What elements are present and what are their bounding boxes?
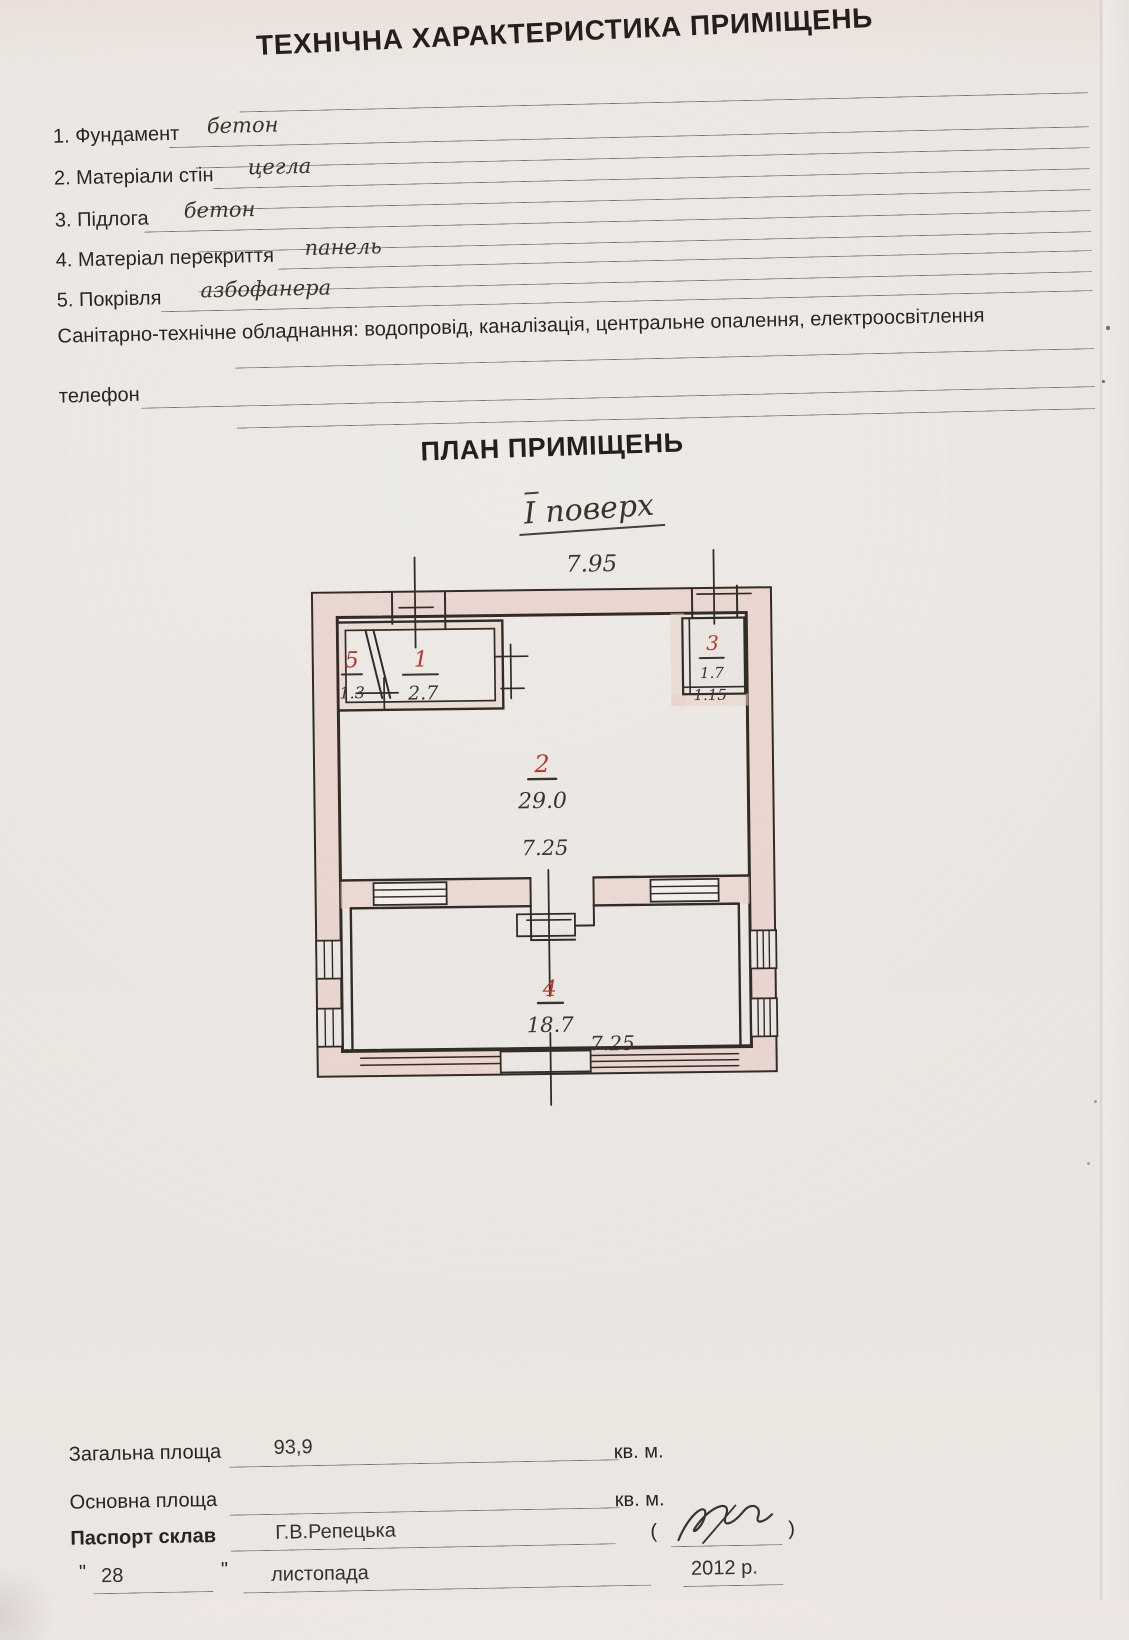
total-area-label: Загальна площа — [69, 1441, 222, 1467]
footer-section: Загальна площа 93,9 кв. м. Основна площа… — [68, 1416, 1081, 1611]
room4-dimension: 7.25 — [590, 1031, 635, 1056]
paper-speck — [1102, 380, 1105, 383]
day-quote-close: " — [221, 1559, 229, 1582]
room1-area: 2.7 — [407, 682, 439, 704]
day-quote-open: " — [79, 1561, 87, 1584]
ruled-line — [144, 210, 1091, 232]
room3-number: 3 — [706, 631, 719, 655]
form-item-value-handwritten: бетон — [183, 197, 255, 223]
passport-author: Г.В.Репецька — [275, 1520, 396, 1545]
room4-area: 18.7 — [527, 1013, 575, 1038]
phone-label: телефон — [59, 384, 140, 409]
scanned-document-photo: { "document": { "title": "ТЕХНІЧНА ХАРАК… — [0, 0, 1129, 1600]
room4-number: 4 — [542, 977, 557, 1002]
plan-top-dimension: 7.95 — [566, 551, 618, 578]
form-item-label: 3. Підлога — [55, 208, 149, 233]
room1-number: 1 — [414, 647, 428, 672]
form-item-label: 5. Покрівля — [56, 287, 161, 312]
area-unit: кв. м. — [614, 1440, 664, 1464]
main-area-label: Основна площа — [69, 1489, 217, 1515]
floor-label-text: І поверх — [523, 488, 655, 532]
paper-right-edge — [1103, 0, 1129, 1600]
form-section: 1. Фундамент бетон 2. Матеріали стін цег… — [44, 80, 1096, 448]
form-item-value-handwritten: панель — [304, 234, 382, 260]
form-item-value-handwritten: бетон — [207, 113, 279, 139]
ruled-line — [230, 1507, 620, 1515]
paper-speck — [1094, 1100, 1097, 1103]
form-item-label: 2. Матеріали стін — [54, 164, 214, 191]
paren-open: ( — [650, 1520, 657, 1543]
room2-number: 2 — [533, 750, 550, 778]
day-value: 28 — [101, 1565, 124, 1588]
floor-plan-drawing: 7.95 5 1.3 1 2.7 3 1.7 1.15 2 29.0 7.25 … — [294, 545, 793, 1141]
paper-speck — [1106, 326, 1110, 330]
ruled-line — [213, 168, 1090, 189]
floor-label-handwritten: І поверх — [517, 487, 665, 536]
ruled-line — [239, 92, 1088, 112]
ruled-line — [197, 189, 1091, 210]
total-area-value: 93,9 — [273, 1436, 312, 1460]
ruled-line — [196, 147, 1090, 168]
paren-close: ) — [788, 1518, 795, 1541]
middle-wall — [340, 875, 749, 908]
ruled-line — [229, 1459, 619, 1467]
ruled-line — [93, 1591, 213, 1594]
roman-numeral-macron — [525, 492, 539, 495]
room5-number: 5 — [345, 648, 359, 673]
passport-label: Паспорт склав — [70, 1525, 216, 1551]
room3-dimension: 1.15 — [693, 686, 727, 704]
form-item-value-handwritten: азбофанера — [200, 275, 331, 302]
paper-speck — [1087, 1162, 1090, 1165]
room2-area: 29.0 — [517, 789, 567, 815]
room3-area: 1.7 — [700, 664, 725, 682]
ruled-line — [683, 1584, 783, 1587]
room3-walls — [682, 618, 745, 695]
year-value: 2012 р. — [691, 1557, 758, 1581]
area-unit: кв. м. — [615, 1488, 665, 1512]
ruled-line — [278, 250, 1092, 269]
form-item-label: 1. Фундамент — [53, 123, 180, 149]
form-item-label: 4. Матеріал перекриття — [56, 245, 275, 273]
month-value: листопада — [271, 1562, 369, 1587]
paper-crease — [1100, 0, 1103, 1600]
ruled-line — [235, 348, 1094, 368]
ruled-line — [141, 386, 1095, 409]
signature — [672, 1498, 777, 1548]
room5-area: 1.3 — [339, 683, 365, 702]
ruled-line — [199, 271, 1093, 292]
ruled-line — [169, 126, 1089, 148]
room2-dimension: 7.25 — [522, 836, 569, 861]
form-item-value-handwritten: цегла — [247, 154, 311, 179]
